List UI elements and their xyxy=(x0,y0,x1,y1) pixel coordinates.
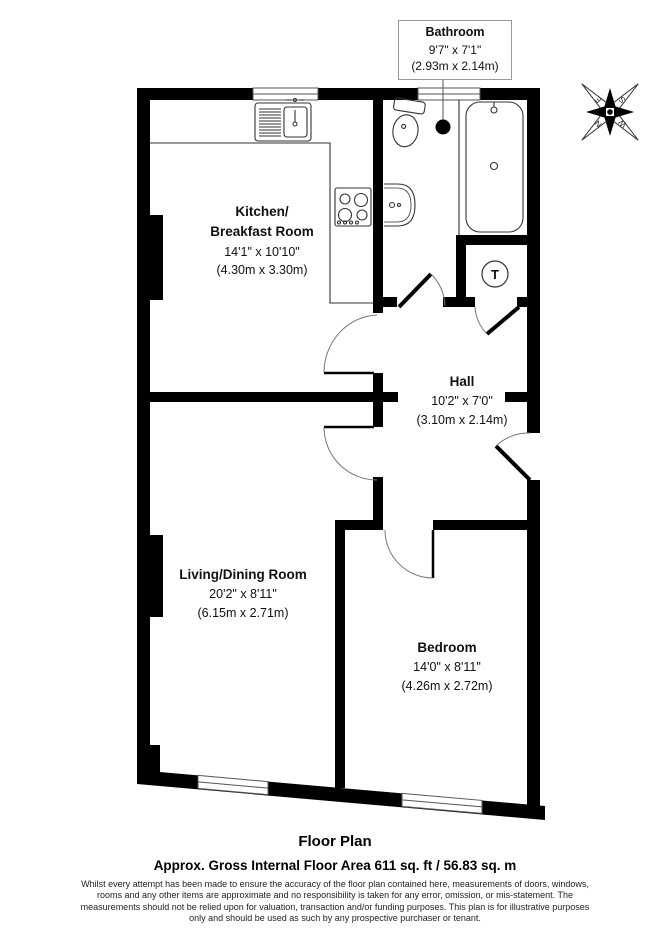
leader-dot xyxy=(436,120,451,135)
disclaimer-line: rooms and any other items are approximat… xyxy=(75,890,595,901)
living-room-label: Living/Dining Room 20'2" x 8'11" (6.15m … xyxy=(152,565,334,623)
bathroom-name: Bathroom xyxy=(399,24,511,42)
hall-metric: (3.10m x 2.14m) xyxy=(382,411,542,430)
bathroom-door xyxy=(399,274,445,307)
kitchen-living-wall xyxy=(148,392,398,402)
hall-imperial: 10'2" x 7'0" xyxy=(382,392,542,411)
bathroom-closet-wall xyxy=(456,235,540,245)
closet-south-jamb xyxy=(517,297,529,307)
bathroom-label: Bathroom 9'7" x 7'1" (2.93m x 2.14m) xyxy=(398,20,512,80)
living-room-window xyxy=(198,775,268,794)
disclaimer-line: Whilst every attempt has been made to en… xyxy=(75,879,595,890)
bedroom-metric: (4.26m x 2.72m) xyxy=(357,677,537,696)
drainer-lines xyxy=(259,109,281,136)
disclaimer-line: measurements should not be relied upon f… xyxy=(75,902,595,913)
toilet xyxy=(388,98,426,149)
bedroom-window xyxy=(402,793,482,813)
kitchen-bathroom-wall xyxy=(373,100,383,313)
bathroom-window xyxy=(418,88,480,100)
kitchen-sink xyxy=(255,99,311,142)
bedroom-north-wall xyxy=(433,520,527,530)
kitchen-label: Kitchen/ Breakfast Room 14'1" x 10'10" (… xyxy=(172,202,352,280)
living-room-door xyxy=(324,427,377,480)
kitchen-window xyxy=(253,88,318,100)
living-bedroom-wall xyxy=(335,530,345,788)
kitchen-metric: (4.30m x 3.30m) xyxy=(172,261,352,280)
top-wall-segment xyxy=(318,88,418,100)
floor-plan-page: T N E S xyxy=(0,0,670,948)
hall-name: Hall xyxy=(382,372,542,392)
entrance-door xyxy=(496,433,530,480)
bathtub xyxy=(466,102,523,232)
hall-living-wall xyxy=(373,477,383,520)
compass-rose: N E S W xyxy=(553,55,666,168)
bedroom-door xyxy=(385,530,433,578)
bedroom-label: Bedroom 14'0" x 8'11" (4.26m x 2.72m) xyxy=(357,638,537,696)
disclaimer: Whilst every attempt has been made to en… xyxy=(75,879,595,924)
floor-plan-drawing: T N E S xyxy=(0,0,670,948)
bathroom-leader xyxy=(436,74,451,135)
bathroom-basin xyxy=(384,184,415,226)
chimney-breast xyxy=(150,215,163,300)
tank-symbol: T xyxy=(482,261,508,287)
left-wall xyxy=(137,88,150,783)
top-wall-segment xyxy=(137,88,253,100)
bathroom-fixtures xyxy=(384,98,523,235)
kitchen-imperial: 14'1" x 10'10" xyxy=(172,243,352,262)
plan-title: Floor Plan xyxy=(0,833,670,850)
bathroom-south-wall xyxy=(383,297,397,307)
kitchen-name-line2: Breakfast Room xyxy=(172,222,352,242)
hall-label: Hall 10'2" x 7'0" (3.10m x 2.14m) xyxy=(382,372,542,430)
closet-west-wall xyxy=(456,235,466,300)
living-room-name: Living/Dining Room xyxy=(152,565,334,585)
bathroom-imperial: 9'7" x 7'1" xyxy=(399,42,511,59)
closet-door xyxy=(475,307,519,334)
kitchen-name-line1: Kitchen/ xyxy=(172,202,352,222)
tank-letter: T xyxy=(491,267,499,282)
living-room-metric: (6.15m x 2.71m) xyxy=(152,604,334,623)
bedroom-north-wall xyxy=(335,520,383,530)
living-room-imperial: 20'2" x 8'11" xyxy=(152,585,334,604)
bedroom-imperial: 14'0" x 8'11" xyxy=(357,658,537,677)
disclaimer-line: only and should be used as such by any p… xyxy=(75,913,595,924)
floor-area-text: Approx. Gross Internal Floor Area 611 sq… xyxy=(0,858,670,873)
bedroom-name: Bedroom xyxy=(357,638,537,658)
kitchen-door xyxy=(324,315,377,373)
bathroom-metric: (2.93m x 2.14m) xyxy=(399,58,511,75)
